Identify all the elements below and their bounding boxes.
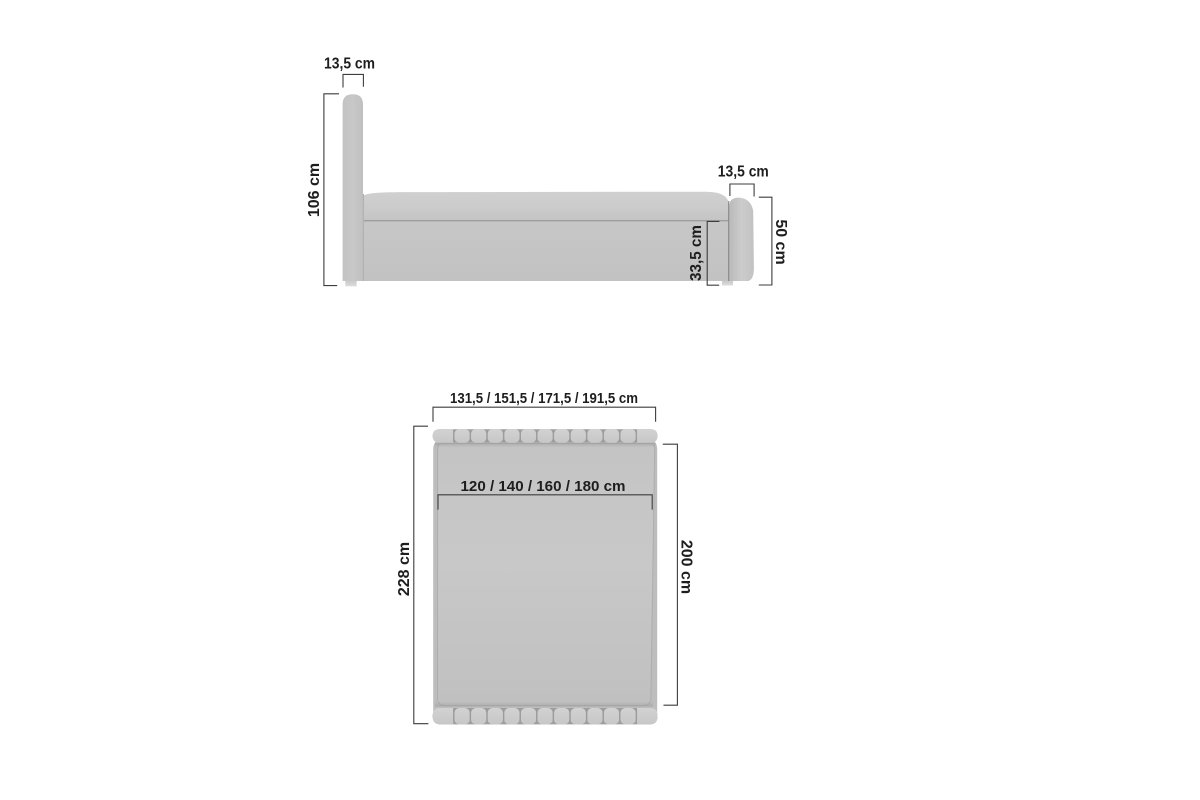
- svg-text:200 cm: 200 cm: [678, 540, 695, 594]
- svg-text:131,5 / 151,5 / 171,5 / 191,5: 131,5 / 151,5 / 171,5 / 191,5 cm: [450, 390, 638, 407]
- svg-text:13,5 cm: 13,5 cm: [718, 164, 769, 181]
- svg-text:13,5 cm: 13,5 cm: [324, 56, 375, 73]
- svg-text:33,5 cm: 33,5 cm: [688, 225, 705, 281]
- svg-text:50 cm: 50 cm: [772, 219, 789, 264]
- svg-text:120 / 140 / 160 / 180 cm: 120 / 140 / 160 / 180 cm: [461, 478, 626, 495]
- svg-text:228 cm: 228 cm: [396, 542, 413, 596]
- svg-text:106 cm: 106 cm: [306, 163, 323, 217]
